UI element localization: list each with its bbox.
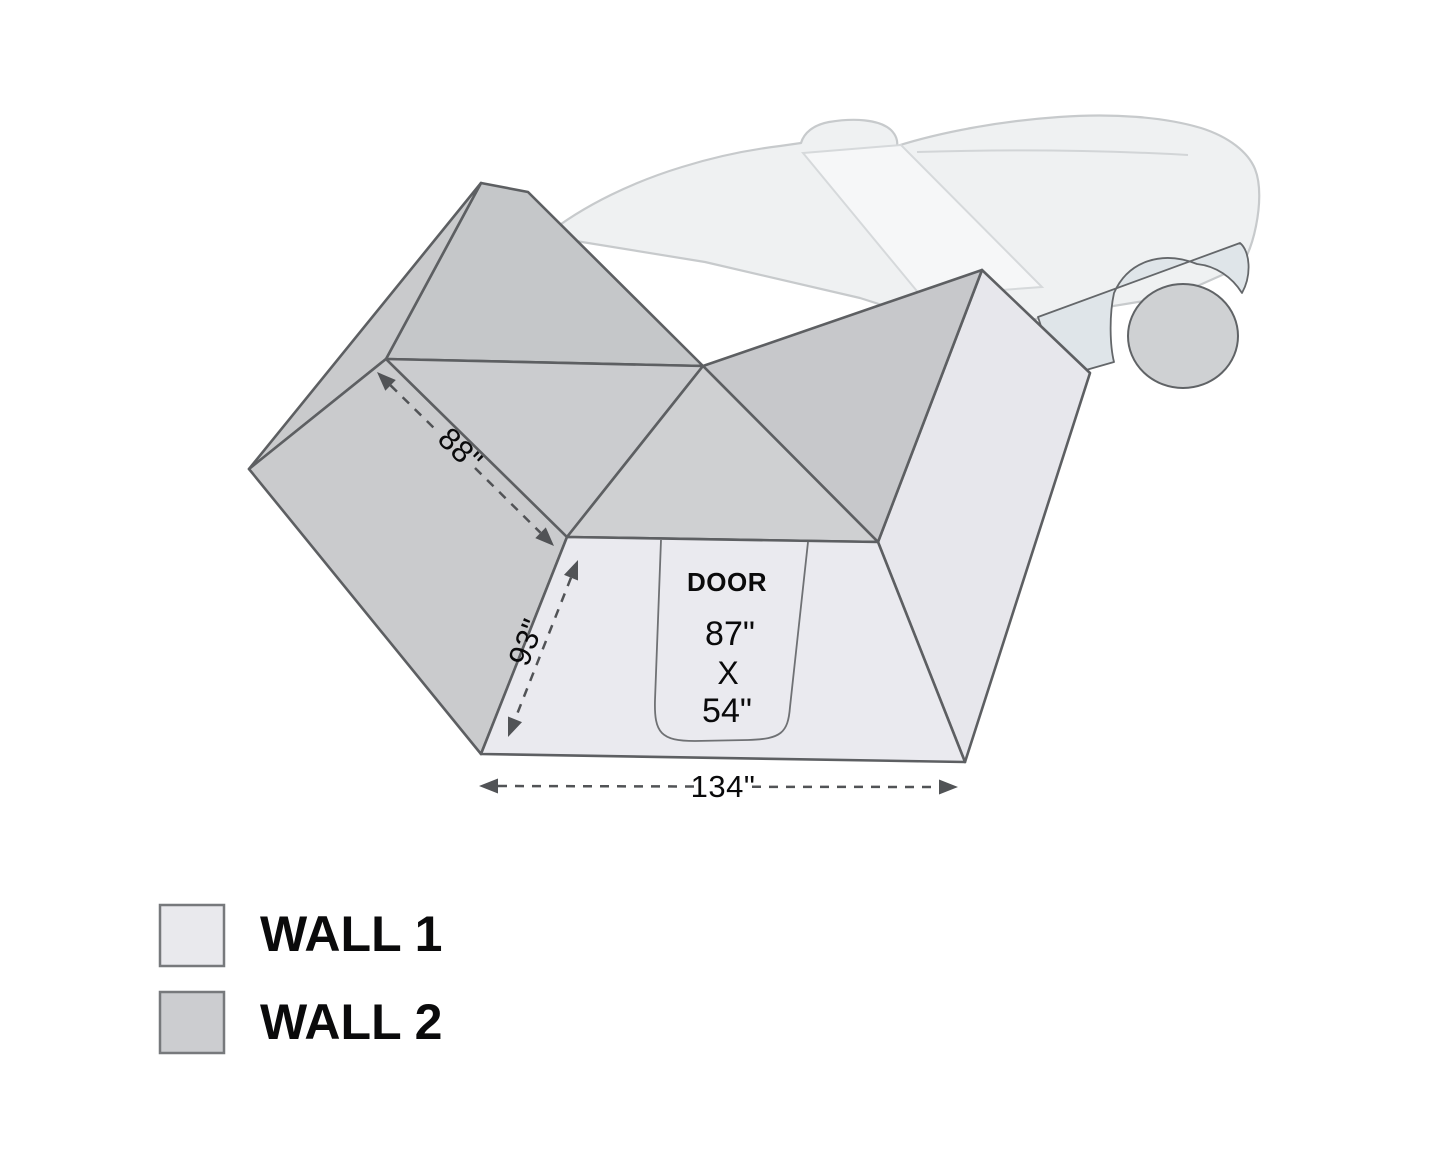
door-label: DOOR bbox=[687, 567, 767, 597]
legend-item-wall2: WALL 2 bbox=[160, 992, 442, 1053]
arrowhead-icon bbox=[479, 779, 498, 794]
legend-label-wall2: WALL 2 bbox=[260, 994, 442, 1050]
diagram-canvas: DOOR 87" X 54" 88" 93" 134" WALL 1 WALL bbox=[0, 0, 1445, 1156]
legend: WALL 1 WALL 2 bbox=[160, 905, 442, 1053]
door-times-label: X bbox=[717, 655, 738, 691]
vehicle-wheel bbox=[1128, 284, 1238, 388]
dimension-front-width: 134" bbox=[479, 769, 958, 804]
legend-item-wall1: WALL 1 bbox=[160, 905, 442, 966]
legend-swatch-wall2 bbox=[160, 992, 224, 1053]
dimension-front-width-value: 134" bbox=[691, 769, 756, 804]
dimension-dashed-line bbox=[498, 786, 694, 787]
arrowhead-icon bbox=[939, 780, 958, 795]
legend-label-wall1: WALL 1 bbox=[260, 906, 442, 962]
legend-swatch-wall1 bbox=[160, 905, 224, 966]
door-width-value: 54" bbox=[702, 692, 752, 730]
door-height-value: 87" bbox=[705, 615, 755, 653]
